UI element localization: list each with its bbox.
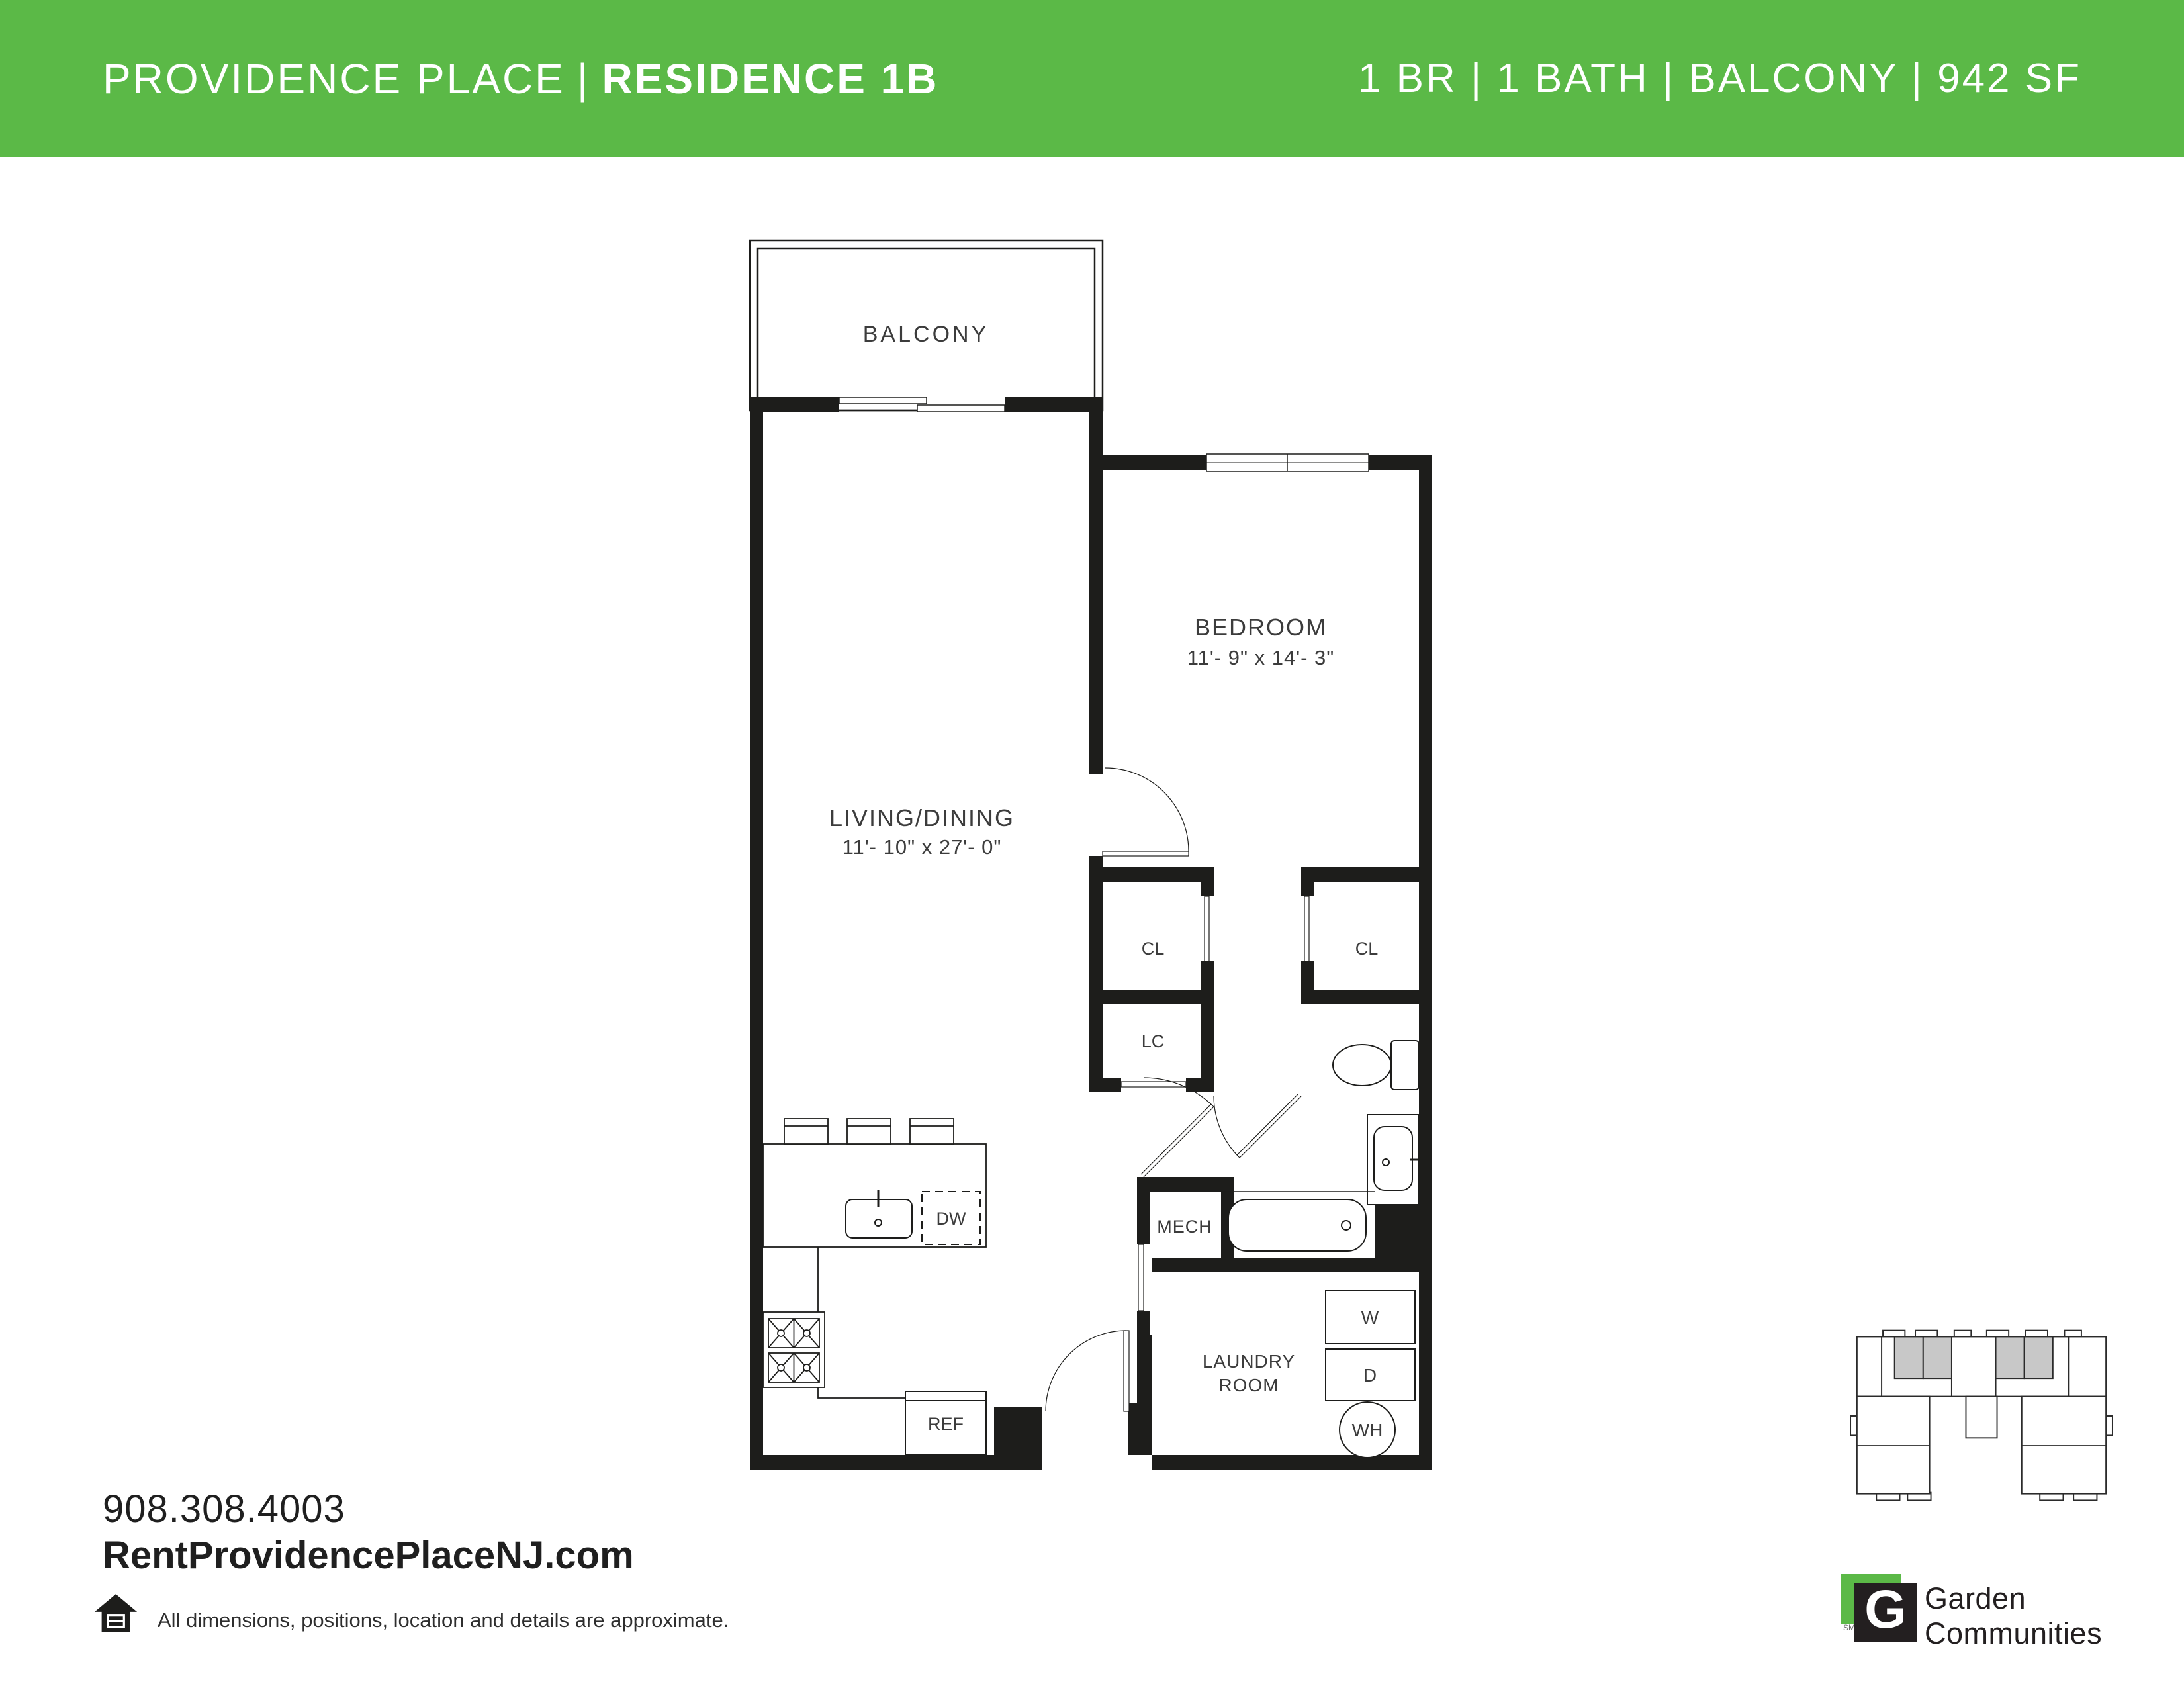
floorplan-drawing: BALCONY LIVING/DINING 11'- 10" x 27'- 0"… <box>747 238 1448 1481</box>
bathtub <box>1221 1192 1375 1251</box>
living-label: LIVING/DINING <box>829 804 1015 831</box>
equal-housing-icon <box>93 1593 139 1634</box>
dryer-label: D <box>1363 1365 1377 1385</box>
refrigerator-label: REF <box>928 1414 964 1434</box>
logo-word-2: Communities <box>1925 1616 2102 1651</box>
bath-door <box>1214 1094 1301 1158</box>
mech-label: MECH <box>1157 1217 1212 1237</box>
sliding-door <box>839 397 1005 412</box>
residence-name: RESIDENCE 1B <box>602 55 938 103</box>
bedroom-label: BEDROOM <box>1195 614 1327 641</box>
logo-wordmark: Garden Communities <box>1925 1581 2102 1651</box>
laundry-door <box>1141 1078 1214 1177</box>
phone-number: 908.308.4003 <box>103 1487 345 1531</box>
toilet <box>1333 1041 1419 1090</box>
bar-stools <box>784 1119 954 1144</box>
building-key-plan <box>1845 1319 2118 1513</box>
hall-closet-label: CL <box>1142 939 1165 959</box>
entry-door <box>1046 1331 1129 1411</box>
bedroom-closet-label: CL <box>1355 939 1379 959</box>
laundry-label-1: LAUNDRY <box>1203 1351 1295 1372</box>
unit-specs: 1 BR | 1 BATH | BALCONY | 942 SF <box>1358 55 2081 102</box>
living-dims: 11'- 10" x 27'- 0" <box>842 835 1002 859</box>
range-stove <box>763 1312 825 1387</box>
balcony-label: BALCONY <box>863 322 989 347</box>
page-title: PROVIDENCE PLACE|RESIDENCE 1B <box>103 54 938 103</box>
kitchen-sink <box>846 1190 912 1238</box>
washer-label: W <box>1361 1307 1379 1328</box>
logo-service-mark: SM <box>1843 1623 1855 1632</box>
website: RentProvidencePlaceNJ.com <box>103 1533 634 1577</box>
linen-closet-label: LC <box>1142 1031 1165 1051</box>
dishwasher-label: DW <box>936 1209 966 1229</box>
property-name: PROVIDENCE PLACE <box>103 55 565 103</box>
disclaimer-text: All dimensions, positions, location and … <box>158 1609 729 1632</box>
floorplan-flyer: PROVIDENCE PLACE|RESIDENCE 1B 1 BR | 1 B… <box>0 0 2184 1688</box>
header-band: PROVIDENCE PLACE|RESIDENCE 1B 1 BR | 1 B… <box>0 0 2184 157</box>
kitchen-counter <box>763 1144 986 1398</box>
laundry-label-2: ROOM <box>1218 1375 1279 1395</box>
bedroom-dims: 11'- 9" x 14'- 3" <box>1187 646 1335 669</box>
logo-word-1: Garden <box>1925 1581 2102 1616</box>
bedroom-door <box>1103 768 1189 856</box>
title-separator: | <box>565 55 602 103</box>
mech-door <box>1138 1244 1144 1311</box>
logo-g-mark: G <box>1853 1579 1918 1640</box>
water-heater-label: WH <box>1352 1420 1383 1440</box>
bedroom-window <box>1206 454 1369 471</box>
